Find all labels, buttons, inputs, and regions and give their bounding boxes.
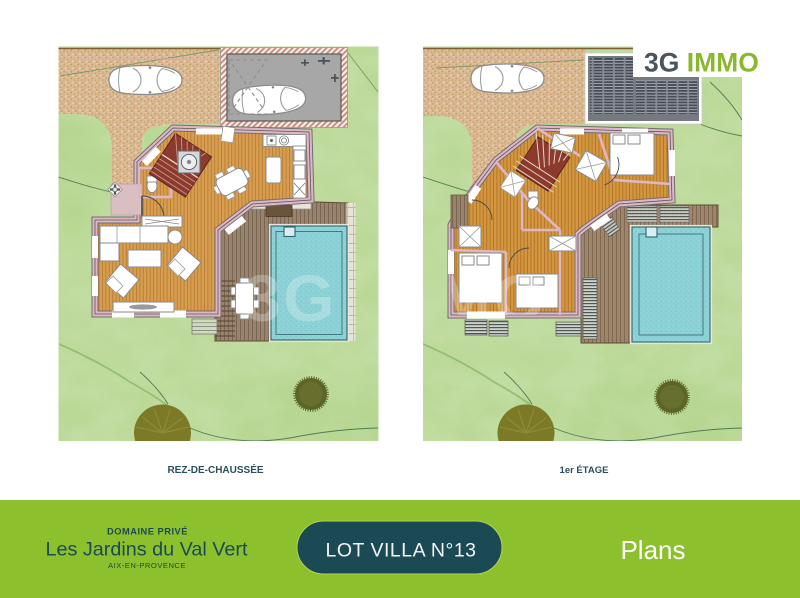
svg-text:AIX-EN-PROVENCE: AIX-EN-PROVENCE <box>108 561 186 570</box>
svg-text:LOT VILLA N°13: LOT VILLA N°13 <box>325 540 476 562</box>
svg-text:Plans: Plans <box>620 535 685 565</box>
svg-text:DOMAINE PRIVÉ: DOMAINE PRIVÉ <box>107 527 188 537</box>
svg-text:3G IMMO: 3G IMMO <box>644 48 759 78</box>
svg-text:REZ-DE-CHAUSSÉE: REZ-DE-CHAUSSÉE <box>167 463 263 476</box>
svg-text:Les Jardins du Val Vert: Les Jardins du Val Vert <box>46 539 248 561</box>
svg-text:1er ÉTAGE: 1er ÉTAGE <box>560 465 609 476</box>
